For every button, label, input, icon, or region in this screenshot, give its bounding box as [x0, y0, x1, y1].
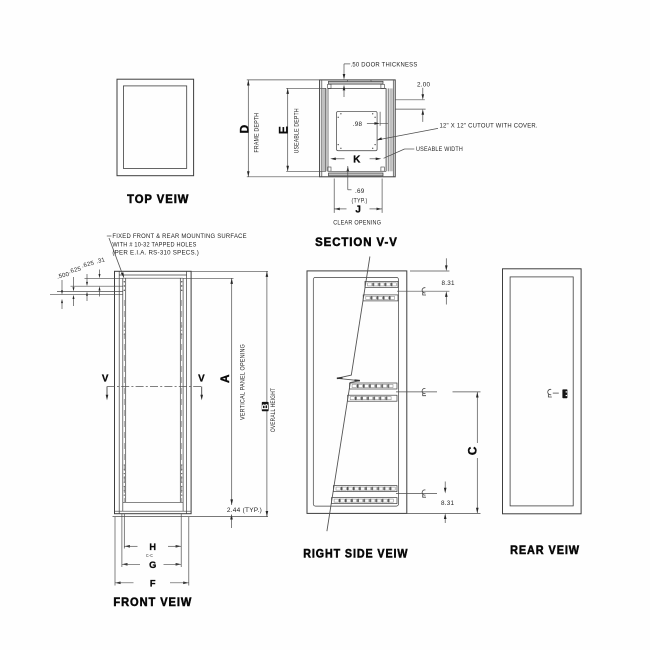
- svg-text:C: C: [466, 446, 480, 455]
- svg-text:(PER E.I.A. RS-310 SPECS.): (PER E.I.A. RS-310 SPECS.): [112, 250, 199, 257]
- svg-text:V: V: [102, 373, 109, 384]
- svg-text:F: F: [150, 579, 156, 589]
- svg-text:A: A: [218, 374, 232, 383]
- svg-text:FRONT VEIW: FRONT VEIW: [113, 595, 192, 609]
- svg-text:8.31: 8.31: [442, 280, 456, 287]
- svg-text:12" X 12" CUTOUT WITH COVER.: 12" X 12" CUTOUT WITH COVER.: [440, 123, 538, 130]
- svg-text:H: H: [149, 542, 156, 552]
- svg-text:.50 DOOR THICKNESS: .50 DOOR THICKNESS: [351, 61, 418, 68]
- svg-text:CLEAR OPENING: CLEAR OPENING: [333, 220, 381, 227]
- svg-text:K: K: [353, 154, 360, 165]
- svg-text:SECTION V-V: SECTION V-V: [315, 235, 398, 249]
- svg-text:WITH # 10-32 TAPPED HOLES: WITH # 10-32 TAPPED HOLES: [112, 241, 196, 248]
- svg-text:FIXED FRONT & REAR MOUNTING SU: FIXED FRONT & REAR MOUNTING SURFACE: [112, 233, 246, 240]
- svg-text:VERTICAL PANEL OPENING: VERTICAL PANEL OPENING: [239, 344, 246, 420]
- svg-text:RIGHT SIDE VEIW: RIGHT SIDE VEIW: [303, 546, 408, 560]
- svg-text:REAR VEIW: REAR VEIW: [510, 543, 580, 557]
- svg-text:2.00: 2.00: [417, 82, 431, 89]
- svg-text:OVERALL HEIGHT: OVERALL HEIGHT: [270, 388, 277, 432]
- svg-text:USEABLE WIDTH: USEABLE WIDTH: [416, 146, 463, 153]
- svg-text:D: D: [237, 124, 251, 133]
- svg-text:USEABLE DEPTH: USEABLE DEPTH: [294, 108, 301, 153]
- svg-text:TOP VEIW: TOP VEIW: [127, 192, 189, 206]
- svg-text:.69: .69: [355, 188, 365, 195]
- svg-text:(TYP.): (TYP.): [352, 197, 368, 204]
- svg-text:2.44 (TYP.): 2.44 (TYP.): [227, 507, 262, 514]
- svg-text:C-C: C-C: [146, 553, 153, 559]
- svg-text:J: J: [355, 205, 361, 216]
- svg-text:B: B: [260, 403, 270, 409]
- svg-text:E: E: [277, 126, 291, 134]
- svg-text:FRAME DEPTH: FRAME DEPTH: [254, 113, 261, 153]
- svg-text:G: G: [149, 560, 156, 570]
- svg-text:.98: .98: [353, 121, 363, 128]
- svg-text:8.31: 8.31: [441, 500, 455, 507]
- svg-text:V: V: [198, 373, 205, 384]
